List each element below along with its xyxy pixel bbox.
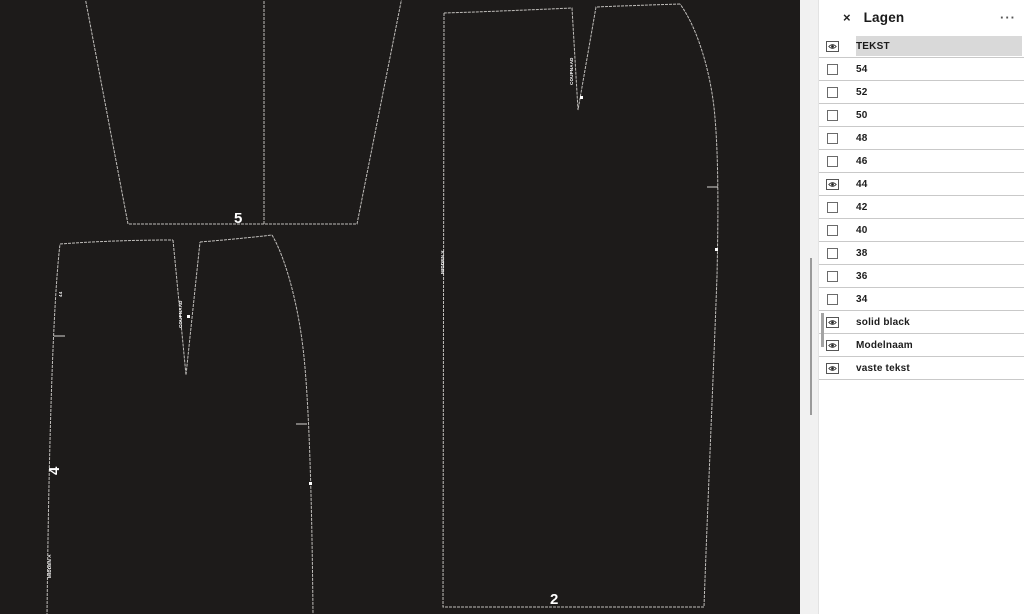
pattern-piece-4[interactable]: 4 44 COUPNAAD MIDDEN A: [46, 235, 313, 614]
visibility-checkbox[interactable]: [827, 87, 838, 98]
piece-2-dart-dot: [580, 96, 583, 99]
visibility-checkbox[interactable]: [827, 64, 838, 75]
visibility-eye-icon[interactable]: [826, 317, 839, 328]
piece-5-label: 5: [234, 210, 242, 227]
layer-label: 52: [856, 82, 1022, 102]
visibility-eye-icon[interactable]: [826, 340, 839, 351]
layer-label: 50: [856, 105, 1022, 125]
layer-label: 44: [856, 174, 1022, 194]
layer-row-52[interactable]: 52: [819, 81, 1024, 104]
visibility-checkbox[interactable]: [827, 133, 838, 144]
layer-row-46[interactable]: 46: [819, 150, 1024, 173]
layer-label: 38: [856, 243, 1022, 263]
visibility-checkbox[interactable]: [827, 271, 838, 282]
pattern-canvas[interactable]: 5 4 44 COUPNAAD MIDDEN A: [0, 0, 800, 614]
layer-row-42[interactable]: 42: [819, 196, 1024, 219]
layer-label: vaste tekst: [856, 358, 1022, 378]
layer-label: 48: [856, 128, 1022, 148]
panel-scrollbar-thumb[interactable]: [821, 313, 824, 347]
layer-label: Modelnaam: [856, 335, 1022, 355]
layer-label: 40: [856, 220, 1022, 240]
layer-label: 42: [856, 197, 1022, 217]
piece-4-edge-text-bottom: MIDDEN A: [47, 554, 52, 578]
piece-4-waist-right: [200, 235, 272, 242]
layer-row-38[interactable]: 38: [819, 242, 1024, 265]
visibility-eye-icon[interactable]: [826, 179, 839, 190]
visibility-checkbox[interactable]: [827, 110, 838, 121]
layer-row-34[interactable]: 34: [819, 288, 1024, 311]
piece-4-label: 4: [46, 466, 63, 475]
canvas-scrollbar-track[interactable]: [800, 0, 818, 614]
layer-row-tekst[interactable]: TEKST: [819, 35, 1024, 58]
piece-4-dart-dot: [187, 315, 190, 318]
pattern-piece-2[interactable]: 2 MIDDEN V COUPNAAD: [440, 4, 718, 608]
visibility-checkbox[interactable]: [827, 248, 838, 259]
piece-2-side-dot: [715, 248, 718, 251]
piece-2-waist-and-dart: [444, 4, 680, 110]
layer-row-40[interactable]: 40: [819, 219, 1024, 242]
piece-4-edge-text-top: 44: [58, 291, 63, 297]
layer-label: solid black: [856, 312, 1022, 332]
piece-2-label: 2: [550, 591, 558, 608]
more-options-icon[interactable]: ···: [1000, 10, 1016, 25]
panel-title: Lagen: [864, 10, 905, 25]
layer-row-solid-black[interactable]: solid black: [819, 311, 1024, 334]
layer-label: 46: [856, 151, 1022, 171]
layers-panel-header: × Lagen ···: [819, 0, 1024, 35]
layer-row-48[interactable]: 48: [819, 127, 1024, 150]
piece-4-dart-text: COUPNAAD: [178, 300, 183, 328]
layer-row-vaste-tekst[interactable]: vaste tekst: [819, 357, 1024, 380]
close-icon[interactable]: ×: [843, 11, 851, 24]
piece-2-dart-text: COUPNAAD: [569, 57, 574, 85]
piece-4-waist-left: [60, 240, 173, 244]
layer-label: 36: [856, 266, 1022, 286]
layer-label: TEKST: [856, 36, 1022, 56]
layer-row-44[interactable]: 44: [819, 173, 1024, 196]
layer-row-54[interactable]: 54: [819, 58, 1024, 81]
piece-5-outline: [85, 0, 402, 224]
visibility-checkbox[interactable]: [827, 294, 838, 305]
layer-row-50[interactable]: 50: [819, 104, 1024, 127]
piece-2-edge-text: MIDDEN V: [440, 250, 445, 274]
layer-row-modelnaam[interactable]: Modelnaam: [819, 334, 1024, 357]
piece-4-side-dot: [309, 482, 312, 485]
layers-panel: × Lagen ··· TEKST 54 52 50: [818, 0, 1024, 614]
layer-list: TEKST 54 52 50 48 46: [819, 35, 1024, 380]
visibility-checkbox[interactable]: [827, 225, 838, 236]
app-window: 5 4 44 COUPNAAD MIDDEN A: [0, 0, 1024, 614]
layer-row-36[interactable]: 36: [819, 265, 1024, 288]
visibility-checkbox[interactable]: [827, 156, 838, 167]
visibility-eye-icon[interactable]: [826, 363, 839, 374]
visibility-eye-icon[interactable]: [826, 41, 839, 52]
pattern-piece-5[interactable]: 5: [85, 0, 402, 227]
layer-label: 34: [856, 289, 1022, 309]
visibility-checkbox[interactable]: [827, 202, 838, 213]
canvas-scrollbar-thumb[interactable]: [810, 258, 812, 415]
layer-label: 54: [856, 59, 1022, 79]
